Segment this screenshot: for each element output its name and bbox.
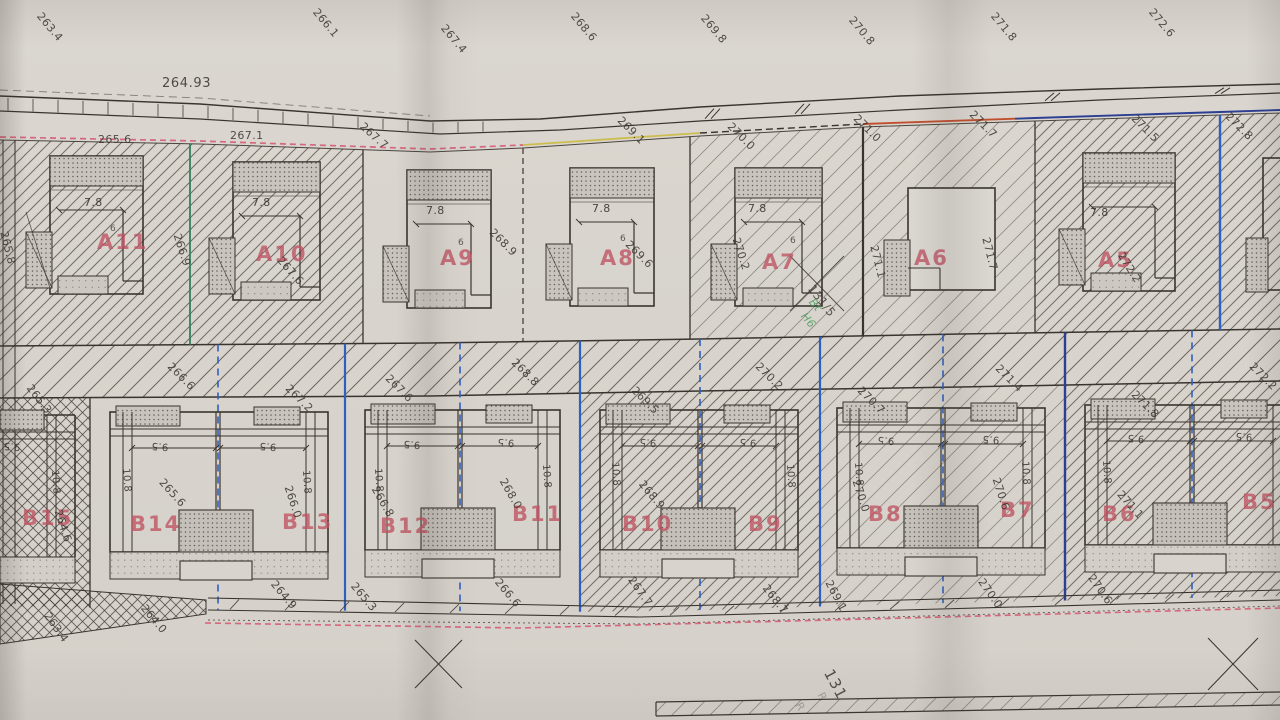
dimension-label: 10.8 (1019, 461, 1032, 486)
dimension-label: 7.8 (252, 196, 271, 209)
plot-label-a11: A11 (97, 230, 148, 254)
elevation-label: 271.8 (988, 10, 1019, 44)
dimension-label: 9.5 (739, 436, 757, 448)
elevation-label: 269.1 (615, 114, 648, 147)
blueprint-photo: 263.4266.1267.4268.6269.8270.8271.8272.6… (0, 0, 1280, 720)
elevation-label: 269.8 (698, 12, 729, 46)
elevation-label: 266.1 (310, 6, 341, 40)
elevation-label: 264.9 (268, 578, 299, 612)
plot-label-a9: A9 (440, 246, 475, 270)
elevation-label: 268.7 (760, 582, 791, 616)
plot-label-b5: B5 (1242, 490, 1277, 514)
elevation-label: 271.7 (967, 108, 1000, 141)
elevation-label: 265.3 (348, 580, 379, 614)
dimension-label: 9.5 (982, 433, 1000, 445)
dimension-label: 10.8 (784, 464, 797, 489)
elevation-label: 270.0 (725, 120, 758, 153)
elevation-label: 271.8 (1129, 388, 1162, 421)
elevation-label: 264.0 (138, 602, 169, 636)
plot-label-a6: A6 (914, 246, 949, 270)
elevation-label: 270.6 (1085, 572, 1115, 607)
elevation-label: 267.4 (438, 22, 469, 56)
plot-label-a7: A7 (762, 250, 797, 274)
plot-label-b14: B14 (130, 512, 181, 536)
elevation-label: 265.6 (98, 133, 132, 146)
dimension-label: 7.8 (426, 204, 445, 217)
elevation-label: 267.7 (625, 574, 655, 609)
dimension-label: 10.8 (1100, 460, 1113, 485)
dimension-label: 9.5 (403, 438, 421, 450)
elevation-label: 271.1 (867, 244, 888, 280)
elevation-label: 267.2 (283, 382, 316, 415)
elevation-label: 270.0 (975, 576, 1005, 611)
elevation-label: 265.8 (0, 230, 18, 266)
elevation-label: 266.6 (165, 360, 198, 393)
elevation-label: 270.0 (850, 478, 873, 514)
elevation-label: 266.6 (492, 576, 523, 610)
dimension-label: 10.8 (49, 470, 62, 495)
dimension-label: 6 (458, 238, 464, 248)
elevation-label: 268.0 (497, 476, 525, 512)
elevation-label: 270.2 (753, 360, 786, 393)
elevation-label: 270.6 (990, 476, 1013, 512)
dimension-label: 6 (110, 224, 116, 234)
dimension-label: 6 (620, 234, 626, 244)
dimension-label: 10.8 (609, 462, 622, 487)
elevation-label: 263.4 (34, 10, 65, 44)
benchmark-elevation: 264.93 (162, 76, 211, 91)
elevation-label: 272.6 (1146, 6, 1177, 40)
elevation-label: 265.6 (156, 476, 188, 510)
dimension-label: 9.5 (3, 440, 21, 452)
elevation-label: 271.4 (993, 362, 1026, 395)
elevation-label: 271.5 (1129, 112, 1162, 145)
dimension-label: 7.8 (592, 202, 611, 215)
elevation-label: 269.1 (823, 578, 850, 614)
elevation-label: 265.3 (24, 382, 55, 416)
elevation-label: 270.8 (846, 14, 877, 48)
dimension-label: 9.5 (497, 436, 515, 448)
dimension-label: 7.8 (84, 196, 103, 209)
dimension-label: 10.8 (540, 464, 553, 489)
elevation-label: 268.8 (509, 356, 542, 389)
handwritten-letter: R (815, 690, 830, 703)
elevation-label: 272.2 (1247, 360, 1280, 393)
dimension-label: 9.5 (877, 434, 895, 446)
elevation-label: 268.9 (487, 226, 520, 259)
elevation-label: 271.7 (979, 236, 1000, 272)
dimension-label: 9.5 (151, 440, 169, 452)
dimension-label: 10.8 (300, 470, 313, 495)
elevation-label: 263.4 (41, 610, 71, 645)
dimension-label: 7.8 (748, 202, 767, 215)
annotation-layer: 263.4266.1267.4268.6269.8270.8271.8272.6… (0, 0, 1280, 720)
elevation-label: 266.8 (369, 484, 397, 520)
elevation-label: 269.5 (629, 384, 662, 417)
elevation-label: 266.9 (171, 232, 194, 268)
dimension-label: 10.8 (120, 468, 133, 493)
dimension-label: 9.5 (1127, 432, 1145, 444)
elevation-label: 272.8 (1223, 110, 1256, 143)
elevation-label: 270.2 (730, 236, 753, 272)
dimension-label: 9.5 (259, 440, 277, 452)
elevation-label: 270.7 (855, 384, 888, 417)
elevation-label: 268.9 (636, 478, 667, 512)
elevation-label: 267.1 (230, 129, 264, 142)
dimension-label: 9.5 (639, 436, 657, 448)
plot-label-b10: B10 (622, 512, 673, 536)
dimension-label: 7.8 (1090, 206, 1109, 219)
handwritten-letter: R (793, 700, 808, 713)
dimension-label: 6 (790, 236, 796, 246)
dimension-label: 9.5 (1235, 430, 1253, 442)
elevation-label: 271.0 (851, 112, 884, 145)
elevation-label: 268.6 (568, 10, 599, 44)
plot-label-b8: B8 (868, 502, 903, 526)
elevation-label: 267.6 (383, 372, 416, 405)
elevation-label: 267.7 (357, 120, 391, 152)
plot-label-b9: B9 (748, 512, 783, 536)
